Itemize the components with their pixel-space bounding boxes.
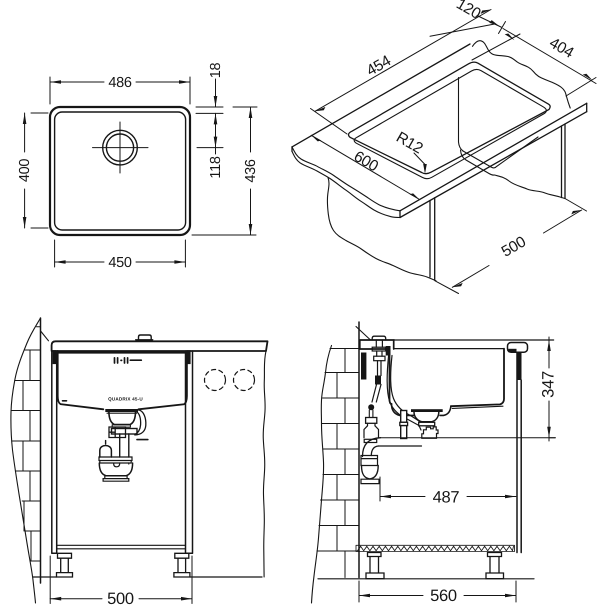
svg-text:436: 436 (243, 159, 259, 183)
svg-text:500: 500 (107, 590, 134, 605)
svg-text:500: 500 (499, 233, 530, 261)
svg-text:18: 18 (208, 63, 224, 79)
svg-text:347: 347 (540, 371, 558, 398)
svg-text:R12: R12 (393, 129, 425, 157)
svg-text:487: 487 (433, 489, 460, 507)
svg-text:450: 450 (108, 255, 132, 271)
svg-text:404: 404 (546, 34, 577, 62)
svg-text:486: 486 (108, 75, 132, 91)
svg-text:118: 118 (208, 156, 224, 178)
svg-text:QUADRIX 45-U: QUADRIX 45-U (108, 396, 143, 401)
svg-text:560: 560 (430, 587, 457, 605)
svg-text:400: 400 (17, 159, 33, 183)
svg-text:454: 454 (364, 52, 395, 80)
svg-text:120: 120 (453, 0, 484, 23)
svg-text:600: 600 (351, 148, 382, 176)
